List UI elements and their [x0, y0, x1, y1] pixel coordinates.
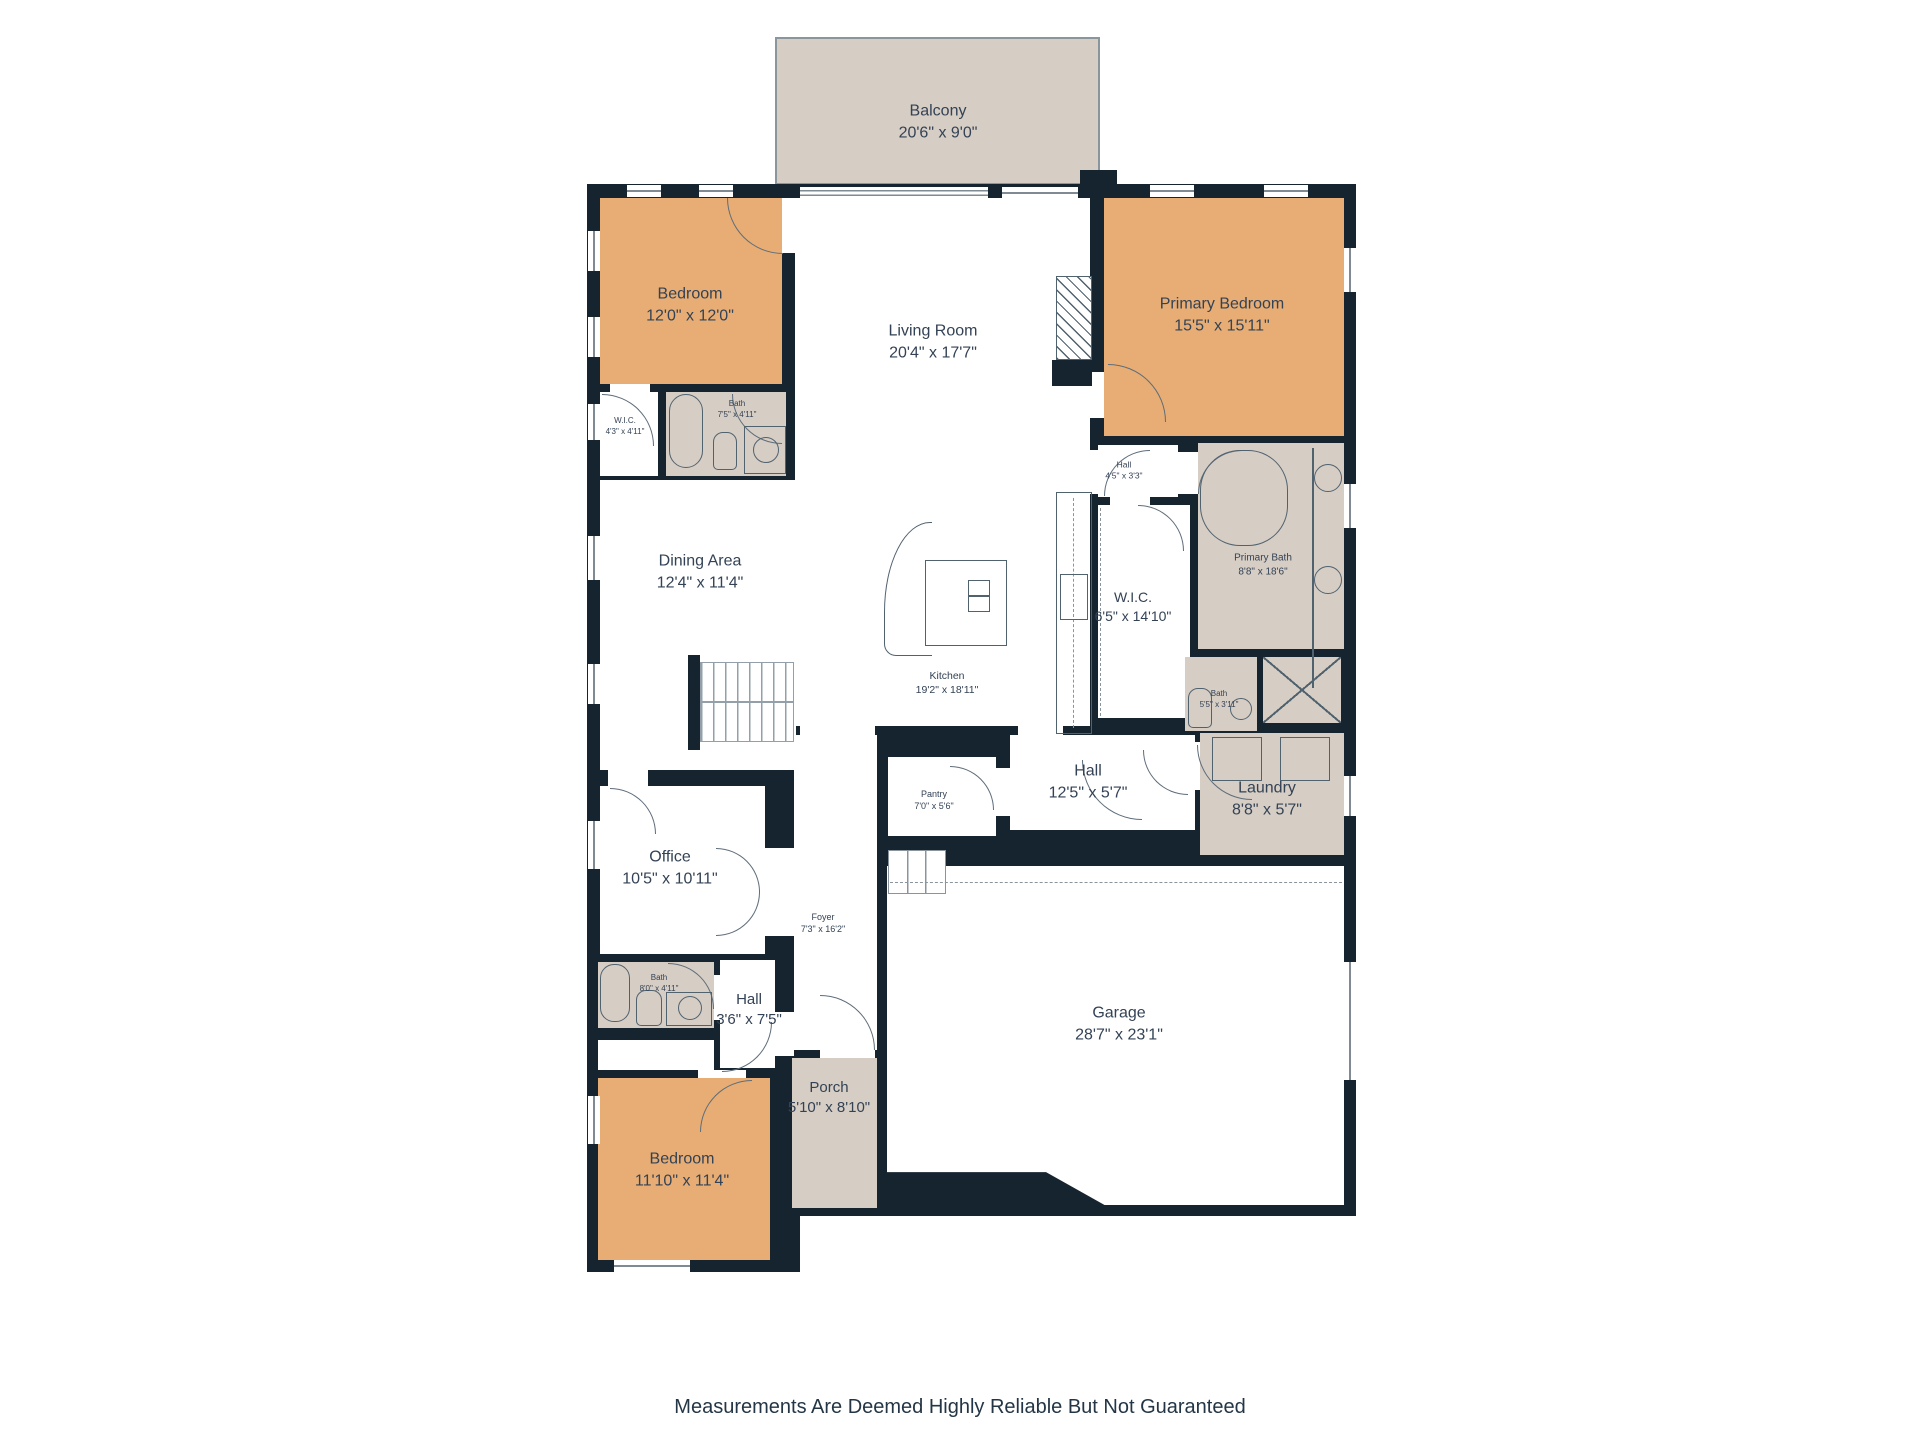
room-label-bath-lower: Bath 8'0" x 4'11"	[640, 973, 679, 995]
window	[699, 185, 733, 197]
room-name: Primary Bath	[1234, 552, 1292, 566]
room-name: Laundry	[1232, 777, 1302, 799]
room-dims: 5'5" x 3'11"	[1200, 700, 1239, 711]
room-dims: 20'6" x 9'0"	[899, 122, 978, 144]
window	[614, 1260, 690, 1272]
room-dims: 11'10" x 11'4"	[635, 1170, 729, 1192]
cooktop-icon	[968, 580, 990, 596]
window	[588, 231, 600, 271]
door-opening	[765, 848, 794, 936]
room-name: Balcony	[899, 100, 978, 122]
room-name: W.I.C.	[1095, 588, 1172, 607]
window	[588, 404, 600, 440]
room-label-hall-lower: Hall 3'6" x 7'5"	[716, 990, 782, 1031]
room-name: Foyer	[801, 911, 845, 923]
bathtub-icon	[669, 394, 703, 468]
door-opening	[1178, 452, 1198, 494]
garage-dash-line	[890, 882, 1342, 883]
window	[1264, 185, 1308, 197]
garage-door-opening	[1344, 962, 1356, 1080]
door-opening	[820, 1050, 875, 1058]
room-name: Bedroom	[635, 1148, 729, 1170]
door-opening	[610, 384, 650, 392]
door-opening	[1086, 450, 1098, 494]
room-dims: 8'8" x 18'6"	[1234, 565, 1292, 579]
room-dims: 10'5" x 10'11"	[622, 868, 717, 890]
counter-line	[1312, 448, 1314, 688]
sink-icon	[678, 996, 702, 1020]
room-label-bath-mid: Bath 5'5" x 3'11"	[1200, 689, 1239, 711]
room-label-hall-center: Hall 12'5" x 5'7"	[1049, 760, 1128, 803]
dryer-icon	[1280, 737, 1330, 781]
room-name: Bath	[1200, 689, 1239, 700]
bathtub-icon	[1200, 450, 1288, 546]
room-label-dining-area: Dining Area 12'4" x 11'4"	[657, 550, 744, 593]
window	[1344, 248, 1356, 292]
room-dims: 7'0" x 5'6"	[914, 800, 953, 812]
window	[1344, 776, 1356, 816]
room-dims: 8'0" x 4'11"	[640, 984, 679, 995]
room-dims: 5'10" x 8'10"	[788, 1098, 870, 1118]
door-opening	[608, 770, 648, 786]
room-name: Pantry	[914, 788, 953, 800]
room-label-balcony: Balcony 20'6" x 9'0"	[899, 100, 978, 143]
room-label-primary-bedroom: Primary Bedroom 15'5" x 15'11"	[1160, 293, 1284, 336]
room-dims: 3'6" x 7'5"	[716, 1010, 782, 1030]
room-dims: 7'3" x 16'2"	[801, 923, 845, 935]
room-dims: 19'2" x 18'11"	[916, 683, 979, 697]
stair-wall	[688, 655, 700, 750]
room-dims: 12'4" x 11'4"	[657, 572, 744, 594]
room-dims: 8'8" x 5'7"	[1232, 799, 1302, 821]
room-name: Living Room	[889, 320, 978, 342]
window	[588, 821, 600, 869]
floor-plan: Balcony 20'6" x 9'0" Bedroom 12'0" x 12'…	[0, 0, 1920, 1440]
room-dims: 7'5" x 4'11"	[718, 410, 757, 421]
room-label-pantry: Pantry 7'0" x 5'6"	[914, 788, 953, 812]
room-label-laundry: Laundry 8'8" x 5'7"	[1232, 777, 1302, 820]
chimney-base-wall	[1052, 360, 1092, 386]
room-label-bedroom-bottom: Bedroom 11'10" x 11'4"	[635, 1148, 729, 1191]
room-label-garage: Garage 28'7" x 23'1"	[1075, 1002, 1163, 1045]
room-name: Bath	[640, 973, 679, 984]
window	[588, 664, 600, 704]
room-label-wic: W.I.C. 6'5" x 14'10"	[1095, 588, 1172, 626]
room-name: Kitchen	[916, 669, 979, 683]
window	[1344, 484, 1356, 528]
stair-divider	[700, 701, 794, 703]
kitchen-island	[925, 560, 1007, 646]
door-opening	[782, 198, 795, 253]
toilet-icon	[713, 432, 737, 470]
door-opening	[800, 724, 875, 738]
room-name: Primary Bedroom	[1160, 293, 1284, 315]
door-opening	[1110, 497, 1150, 505]
room-label-kitchen: Kitchen 19'2" x 18'11"	[916, 669, 979, 697]
room-name: Hall	[716, 990, 782, 1010]
sliding-door	[800, 187, 988, 199]
toilet-icon	[636, 990, 662, 1026]
fireplace-hatch	[1056, 276, 1092, 360]
room-label-porch: Porch 5'10" x 8'10"	[788, 1078, 870, 1119]
window	[1002, 187, 1078, 199]
room-dims: 4'5" x 3'3"	[1105, 471, 1142, 482]
room-closet-lower	[598, 1040, 714, 1070]
room-dims: 28'7" x 23'1"	[1075, 1024, 1163, 1046]
room-label-wic-small: W.I.C. 4'3" x 4'11"	[606, 416, 645, 438]
window	[1150, 185, 1194, 197]
fridge-icon	[1060, 574, 1088, 620]
room-name: Bath	[718, 399, 757, 410]
door-opening	[1090, 372, 1104, 418]
room-dims: 15'5" x 15'11"	[1160, 315, 1284, 337]
room-name: Bedroom	[646, 283, 734, 305]
room-label-foyer: Foyer 7'3" x 16'2"	[801, 911, 845, 935]
window	[627, 185, 661, 197]
room-dims: 12'0" x 12'0"	[646, 305, 734, 327]
room-dims: 20'4" x 17'7"	[889, 342, 978, 364]
room-label-hall-small: Hall 4'5" x 3'3"	[1105, 460, 1142, 483]
window	[588, 536, 600, 580]
room-dims: 6'5" x 14'10"	[1095, 607, 1172, 626]
shower-x-icon	[1263, 657, 1341, 723]
room-dims: 4'3" x 4'11"	[606, 427, 645, 438]
room-label-bedroom-top: Bedroom 12'0" x 12'0"	[646, 283, 734, 326]
room-name: Hall	[1049, 760, 1128, 782]
room-label-living-room: Living Room 20'4" x 17'7"	[889, 320, 978, 363]
room-name: Hall	[1105, 460, 1142, 471]
room-name: W.I.C.	[606, 416, 645, 427]
cooktop-icon	[968, 596, 990, 612]
room-label-office: Office 10'5" x 10'11"	[622, 846, 717, 889]
room-living-kitchen	[795, 198, 1090, 726]
room-name: Dining Area	[657, 550, 744, 572]
window	[588, 317, 600, 357]
room-name: Office	[622, 846, 717, 868]
entry-steps	[888, 850, 946, 894]
sink-icon	[753, 437, 779, 463]
room-name: Porch	[788, 1078, 870, 1098]
disclaimer-text: Measurements Are Deemed Highly Reliable …	[0, 1396, 1920, 1419]
room-label-primary-bath: Primary Bath 8'8" x 18'6"	[1234, 552, 1292, 579]
wall-segment	[1080, 170, 1117, 185]
sink-icon	[1314, 464, 1342, 492]
washer-icon	[1212, 737, 1262, 781]
bathtub-icon	[600, 964, 630, 1022]
window	[588, 1096, 600, 1144]
room-name: Garage	[1075, 1002, 1163, 1024]
sink-icon	[1314, 566, 1342, 594]
room-dims: 12'5" x 5'7"	[1049, 782, 1128, 804]
room-label-bath-top: Bath 7'5" x 4'11"	[718, 399, 757, 421]
door-opening	[996, 768, 1010, 816]
